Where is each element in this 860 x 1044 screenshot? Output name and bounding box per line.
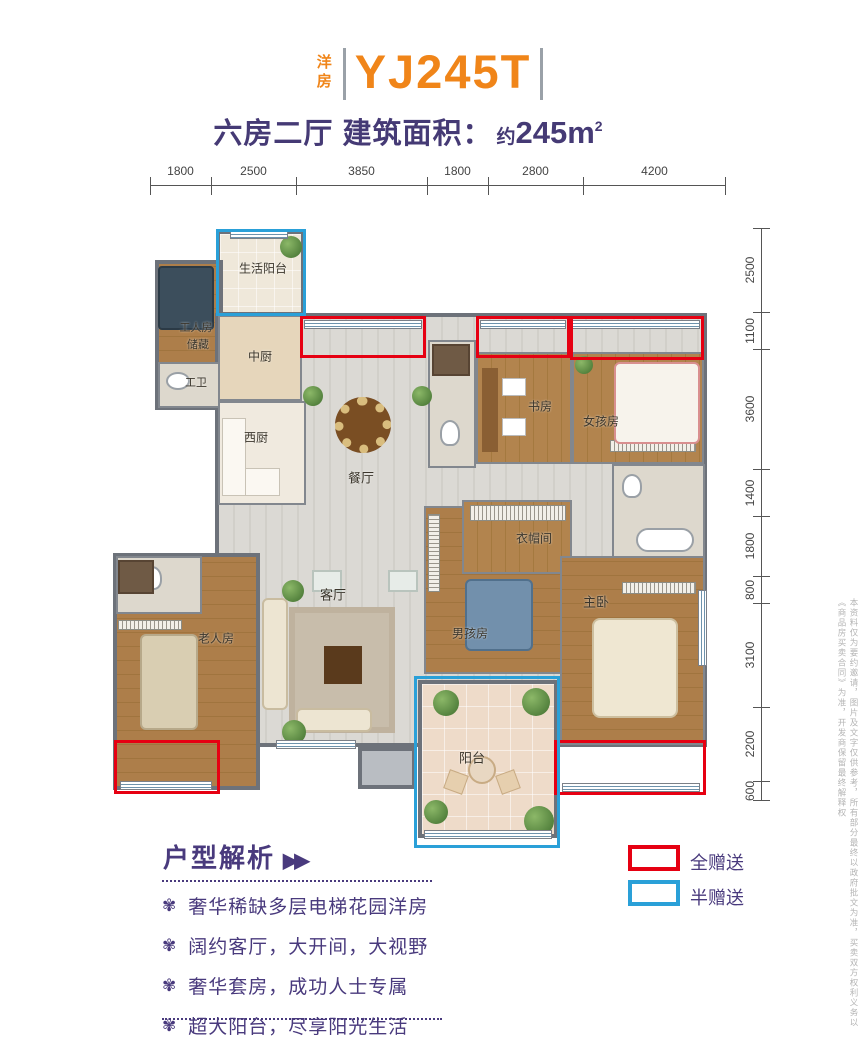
room-label-master: 主卧: [583, 592, 609, 611]
shower: [432, 344, 470, 376]
full-gift-overlay: [554, 740, 706, 795]
dimension-row-top: 1800 2500 3850 1800 2800 4200: [150, 164, 726, 196]
dim-segment: 1800: [742, 516, 772, 576]
room-label-storage: 储藏: [187, 336, 209, 352]
subtitle: 六房二厅 建筑面积： 约 245m 2: [0, 110, 816, 152]
dimension-column-right: 2500 1100 3600 1400 1800 800 3100 2200 6…: [742, 228, 772, 801]
full-gift-overlay: [570, 316, 704, 360]
analysis-item-text: 奢华套房，成功人士专属: [188, 972, 408, 999]
dim-segment: 800: [742, 576, 772, 603]
desk-chair: [502, 378, 526, 396]
closet-wardrobe: [470, 505, 566, 521]
kitchen-counter: [222, 418, 246, 496]
dim-segment: 1800: [427, 164, 488, 196]
room-label-boy: 男孩房: [452, 625, 488, 642]
subtitle-area-value: 245m: [515, 115, 594, 151]
room-label-worker-bath: 工卫: [185, 374, 207, 390]
dim-segment: 3100: [742, 603, 772, 707]
analysis-item-text: 奢华稀缺多层电梯花园洋房: [188, 892, 428, 919]
half-gift-overlay: [216, 229, 306, 316]
legend-label-half-gift: 半赠送: [690, 884, 744, 910]
dim-segment: 600: [742, 781, 772, 801]
analysis-list: ✾奢华稀缺多层电梯花园洋房 ✾阔约客厅，大开间，大视野 ✾奢华套房，成功人士专属…: [162, 892, 428, 1044]
master-bed: [592, 618, 678, 718]
analysis-item-text: 阔约客厅，大开间，大视野: [188, 932, 428, 959]
half-gift-overlay: [414, 676, 560, 848]
disclaimer-text: 本资料仅为要约邀请，图片及文字仅供参考，所有部分最终以政府批文为准，买卖双方权利…: [836, 598, 860, 1040]
room-label-worker: 工人房: [180, 319, 213, 335]
title-divider-left: [343, 48, 346, 100]
analysis-title-text: 户型解析: [163, 843, 275, 873]
master-wardrobe: [622, 582, 696, 594]
room-label-dining: 餐厅: [348, 468, 374, 487]
study-desk: [482, 368, 498, 452]
analysis-item: ✾奢华套房，成功人士专属: [162, 972, 428, 999]
analysis-title: 户型解析▶▶: [163, 838, 306, 875]
dining-table: [335, 397, 391, 453]
legend-swatch-half-gift: [628, 880, 680, 906]
dim-segment: 2800: [488, 164, 583, 196]
elder-bed: [140, 634, 198, 730]
dim-segment: 2500: [742, 228, 772, 312]
bathtub: [636, 528, 694, 552]
dim-segment: 1100: [742, 312, 772, 349]
elder-wardrobe: [118, 620, 182, 630]
plant: [303, 386, 323, 406]
room-label-girl: 女孩房: [583, 413, 619, 430]
model-code: YJ245T: [355, 46, 532, 98]
girl-bed: [614, 362, 700, 444]
dotted-divider-bottom: [162, 1018, 442, 1020]
room-label-elder: 老人房: [198, 630, 234, 647]
boy-wardrobe: [428, 514, 440, 592]
legend-label-full-gift: 全赠送: [690, 849, 744, 875]
analysis-item: ✾阔约客厅，大开间，大视野: [162, 932, 428, 959]
entry-porch: [358, 747, 416, 789]
desk-chair: [502, 418, 526, 436]
plant: [412, 386, 432, 406]
dotted-divider-top: [162, 880, 432, 882]
room-label-kitchen-west: 西厨: [244, 429, 268, 446]
dim-segment: 4200: [583, 164, 726, 196]
dim-segment: 1400: [742, 469, 772, 516]
dim-segment: 3850: [296, 164, 427, 196]
full-gift-overlay: [476, 316, 570, 358]
double-arrow-icon: ▶▶: [283, 850, 306, 872]
room-label-study: 书房: [528, 398, 552, 415]
title-block: 洋房 YJ245T: [0, 46, 860, 100]
room-label-living: 客厅: [320, 585, 346, 604]
analysis-item: ✾奢华稀缺多层电梯花园洋房: [162, 892, 428, 919]
analysis-item-text: 超大阳台，尽享阳光生活: [188, 1012, 408, 1039]
loveseat: [296, 708, 372, 732]
dim-segment: 2500: [211, 164, 296, 196]
toilet: [622, 474, 642, 498]
title-divider-right: [540, 48, 543, 100]
subtitle-approx: 约: [496, 122, 515, 149]
shower: [118, 560, 154, 594]
full-gift-overlay: [114, 740, 220, 794]
armchair: [388, 570, 418, 592]
window: [698, 590, 707, 666]
subtitle-area-sup: 2: [595, 118, 603, 134]
dim-segment: 3600: [742, 349, 772, 469]
full-gift-overlay: [300, 316, 426, 358]
flower-bullet-icon: ✾: [162, 896, 177, 916]
floorplan-page: 洋房 YJ245T 六房二厅 建筑面积： 约 245m 2 1800 2500 …: [0, 0, 860, 1044]
room-label-kitchen-cn: 中厨: [248, 348, 272, 365]
toilet: [440, 420, 460, 446]
dim-segment: 1800: [150, 164, 211, 196]
flower-bullet-icon: ✾: [162, 976, 177, 996]
flower-bullet-icon: ✾: [162, 936, 177, 956]
window: [276, 740, 356, 749]
subtitle-layout-area: 六房二厅 建筑面积：: [213, 110, 492, 152]
dim-segment: 2200: [742, 707, 772, 781]
room-label-closet: 衣帽间: [516, 530, 552, 547]
series-label: 洋房: [317, 54, 334, 92]
coffee-table: [324, 646, 362, 684]
legend-swatch-full-gift: [628, 845, 680, 871]
sofa: [262, 598, 288, 710]
plant: [282, 580, 304, 602]
analysis-item: ✾超大阳台，尽享阳光生活: [162, 1012, 428, 1039]
